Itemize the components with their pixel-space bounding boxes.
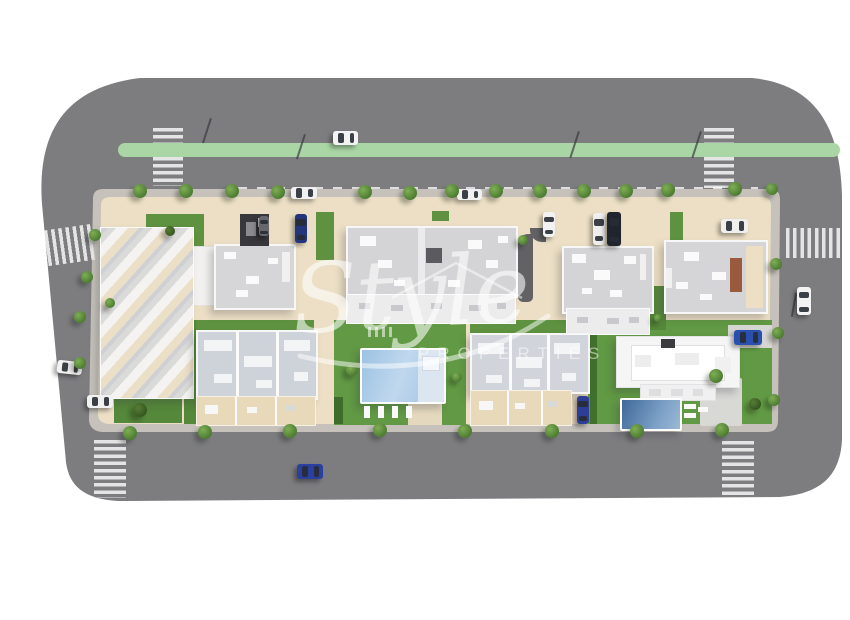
- car-east-drive-white: [721, 219, 748, 233]
- street-tree: [133, 403, 147, 417]
- townhouses-row2-part: [562, 373, 576, 381]
- car-glass: [594, 219, 603, 226]
- building-b-roof-part: [378, 260, 392, 268]
- street-tree: [452, 372, 462, 382]
- street-tree: [346, 364, 358, 376]
- car-glass: [726, 221, 732, 232]
- community-pool: [360, 348, 446, 404]
- hedge-villa-west: [590, 328, 597, 424]
- car-glass: [595, 236, 604, 241]
- villa-loungers-part: [684, 404, 696, 409]
- car-glass: [296, 188, 302, 197]
- building-a-court-part: [246, 222, 256, 236]
- building-b-terraces-part: [497, 303, 506, 309]
- car-bottom-road-blue: [297, 464, 323, 479]
- street-tree: [770, 258, 782, 270]
- townhouses-row2-part: [486, 375, 502, 383]
- building-c-roof-part: [640, 254, 646, 280]
- lawn-left-garden: [114, 396, 182, 423]
- street-tree: [715, 423, 729, 437]
- building-b-roof-part: [418, 228, 425, 296]
- townhouses-row1-part: [284, 340, 310, 351]
- street-tree: [661, 183, 675, 197]
- crosswalk-bottom-left: [94, 440, 126, 498]
- building-c-roof-part: [572, 254, 586, 263]
- crosswalk-top-right: [704, 128, 734, 188]
- townhouses-row1-part: [244, 356, 272, 367]
- car-glass: [314, 466, 319, 477]
- street-lamp: [202, 118, 212, 143]
- patios-row2-part: [541, 391, 543, 425]
- van-dark: [607, 212, 621, 246]
- community-pool-part: [362, 350, 418, 402]
- patios-row1-part: [285, 405, 295, 411]
- building-b-roof-part: [498, 236, 508, 243]
- car-glass: [350, 133, 355, 143]
- car-glass: [338, 133, 344, 144]
- building-c-roof-part: [610, 290, 622, 297]
- building-d-roof-part: [684, 252, 699, 261]
- patios-row1: [196, 396, 316, 426]
- community-pool-part: [422, 356, 440, 371]
- crosswalk-left: [44, 224, 97, 266]
- lawn-d-top: [670, 212, 683, 240]
- building-b-roof: [346, 226, 518, 298]
- van-white: [593, 213, 605, 245]
- building-a-roof-part: [224, 252, 236, 259]
- brand-logo-bars: [368, 327, 394, 337]
- street-tree: [133, 184, 147, 198]
- patios-row2-part: [479, 401, 493, 410]
- car-glass: [609, 237, 619, 242]
- street-tree: [373, 423, 387, 437]
- car-curb-white-1: [291, 187, 317, 199]
- car-villa-blue: [734, 330, 762, 345]
- patios-row1-part: [205, 405, 218, 414]
- site-plan-render: Style PROPERTIES: [0, 0, 850, 620]
- street-tree: [198, 425, 212, 439]
- street-tree: [89, 229, 101, 241]
- townhouses-row1-part: [214, 374, 232, 383]
- crosswalk-right: [786, 228, 840, 258]
- patios-row1-part: [247, 407, 257, 413]
- street-tree: [165, 226, 175, 236]
- car-glass: [544, 217, 553, 223]
- villa-pool: [620, 398, 682, 431]
- building-d-roof-part: [666, 268, 672, 288]
- building-c-terraces: [566, 308, 650, 335]
- car-glass: [579, 416, 588, 420]
- street-tree: [768, 394, 780, 406]
- crosswalk-bottom-right: [722, 441, 754, 497]
- street-tree: [271, 185, 285, 199]
- lawn-b-top: [432, 211, 449, 221]
- building-b-roof-part: [426, 248, 442, 263]
- car-glass: [302, 466, 308, 477]
- street-tree: [489, 184, 503, 198]
- villa-terrace-part: [693, 389, 703, 396]
- villa-roof-part: [635, 355, 651, 367]
- car-row2-blue: [577, 396, 589, 424]
- building-b-roof-part: [468, 240, 482, 249]
- car-driveway-gray: [259, 216, 269, 236]
- lawn-center-west: [316, 212, 334, 260]
- townhouses-row2: [470, 333, 590, 394]
- street-tree: [74, 311, 86, 323]
- townhouses-row1: [196, 330, 318, 400]
- villa-roof-part: [675, 353, 699, 365]
- building-c-terraces-part: [607, 318, 619, 324]
- car-driveway-blue: [295, 214, 307, 243]
- car-glass: [462, 190, 468, 198]
- building-b-terraces-part: [431, 303, 442, 309]
- townhouses-row2-part: [554, 343, 580, 354]
- street-tree: [358, 185, 372, 199]
- building-b-terraces-part: [469, 305, 481, 311]
- villa-roof-part: [661, 339, 675, 348]
- building-d-roof-part: [712, 272, 726, 280]
- car-glass: [92, 397, 98, 407]
- street-tree: [533, 184, 547, 198]
- building-c-terraces-part: [629, 317, 639, 323]
- car-glass: [578, 401, 587, 407]
- villa-loungers-part: [698, 407, 708, 412]
- street-tree: [458, 424, 472, 438]
- building-a-roof: [214, 244, 296, 310]
- car-glass: [545, 230, 554, 234]
- street-tree: [630, 424, 644, 438]
- building-a-roof-part: [236, 290, 248, 297]
- building-c-terraces-part: [577, 317, 588, 323]
- building-b-roof-part: [360, 236, 376, 246]
- hedge-pool-west: [334, 397, 343, 424]
- rowhouses-west: [100, 227, 194, 399]
- street-tree: [577, 184, 591, 198]
- townhouses-row1-part: [236, 332, 239, 398]
- car-glass: [308, 189, 313, 198]
- street-tree: [179, 184, 193, 198]
- building-d-roof-part: [746, 246, 763, 308]
- street-tree: [772, 327, 784, 339]
- patios-row2-part: [547, 401, 557, 407]
- building-d-roof: [664, 240, 768, 314]
- building-b-roof-part: [394, 280, 405, 286]
- car-glass: [104, 397, 109, 406]
- building-c-roof-part: [624, 256, 636, 264]
- building-d-roof-part: [676, 282, 688, 289]
- townhouses-row1-part: [256, 380, 272, 388]
- car-curb-white-2: [457, 189, 482, 200]
- building-b-terraces-part: [359, 303, 370, 309]
- pool-loungers-part: [364, 406, 370, 418]
- car-center-white: [543, 212, 555, 237]
- townhouses-row2-part: [547, 335, 550, 392]
- villa-terrace-part: [649, 389, 661, 396]
- patios-row2: [470, 390, 572, 426]
- building-b-terraces: [346, 294, 516, 324]
- villa-loungers-part: [684, 413, 696, 418]
- street-tree: [654, 314, 662, 322]
- car-glass: [799, 307, 809, 311]
- street-tree: [74, 357, 86, 369]
- townhouses-row1-part: [276, 332, 279, 398]
- townhouses-row2-part: [478, 343, 504, 354]
- street-tree: [619, 184, 633, 198]
- villa-loungers: [684, 404, 710, 420]
- townhouses-row2-part: [509, 335, 512, 392]
- building-c-roof-part: [594, 270, 610, 280]
- building-a-roof-part: [268, 258, 278, 264]
- building-b-terraces-part: [391, 305, 403, 311]
- building-a-roof-part: [246, 276, 259, 284]
- scene-objects: [0, 0, 850, 620]
- building-b-roof-part: [448, 280, 460, 287]
- car-top-road-white: [333, 131, 358, 145]
- car-glass: [474, 191, 479, 199]
- car-glass: [609, 218, 620, 225]
- villa-terrace-part: [671, 389, 683, 396]
- building-d-roof-part: [700, 294, 712, 300]
- car-right-road-white: [797, 287, 811, 315]
- car-glass: [739, 221, 744, 231]
- car-glass: [753, 332, 758, 343]
- patios-row1-part: [275, 397, 277, 425]
- street-tree: [518, 235, 528, 245]
- pool-loungers-part: [378, 406, 384, 418]
- bike-lane: [118, 143, 840, 157]
- street-tree: [709, 369, 723, 383]
- building-c-roof: [562, 246, 654, 314]
- car-glass: [740, 332, 746, 343]
- street-tree: [728, 182, 742, 196]
- pool-loungers-part: [406, 406, 412, 418]
- building-a-roof-part: [282, 252, 290, 282]
- street-tree: [545, 424, 559, 438]
- crosswalk-top-left: [153, 128, 183, 186]
- patios-row2-part: [515, 403, 525, 409]
- street-tree: [105, 298, 115, 308]
- car-glass: [62, 362, 69, 372]
- car-sw-drive-white: [87, 395, 113, 408]
- car-glass: [297, 235, 306, 239]
- townhouses-row2-part: [516, 357, 542, 368]
- car-glass: [260, 220, 268, 224]
- townhouses-row2-part: [524, 379, 540, 387]
- townhouses-row1-part: [204, 340, 232, 351]
- patios-row2-part: [507, 391, 509, 425]
- building-d-roof-part: [730, 258, 742, 292]
- townhouses-row1-part: [294, 372, 308, 381]
- street-tree: [81, 271, 93, 283]
- street-tree: [283, 424, 297, 438]
- building-b-roof-part: [486, 260, 498, 268]
- street-tree: [766, 183, 778, 195]
- car-glass: [799, 292, 810, 298]
- pool-loungers-part: [392, 406, 398, 418]
- patios-row1-part: [235, 397, 237, 425]
- street-tree: [225, 184, 239, 198]
- street-tree: [749, 398, 761, 410]
- street-tree: [403, 186, 417, 200]
- car-glass: [296, 219, 305, 225]
- pool-loungers: [364, 406, 418, 418]
- street-tree: [445, 184, 459, 198]
- car-glass: [260, 231, 267, 234]
- street-tree: [123, 426, 137, 440]
- building-c-roof-part: [582, 288, 592, 294]
